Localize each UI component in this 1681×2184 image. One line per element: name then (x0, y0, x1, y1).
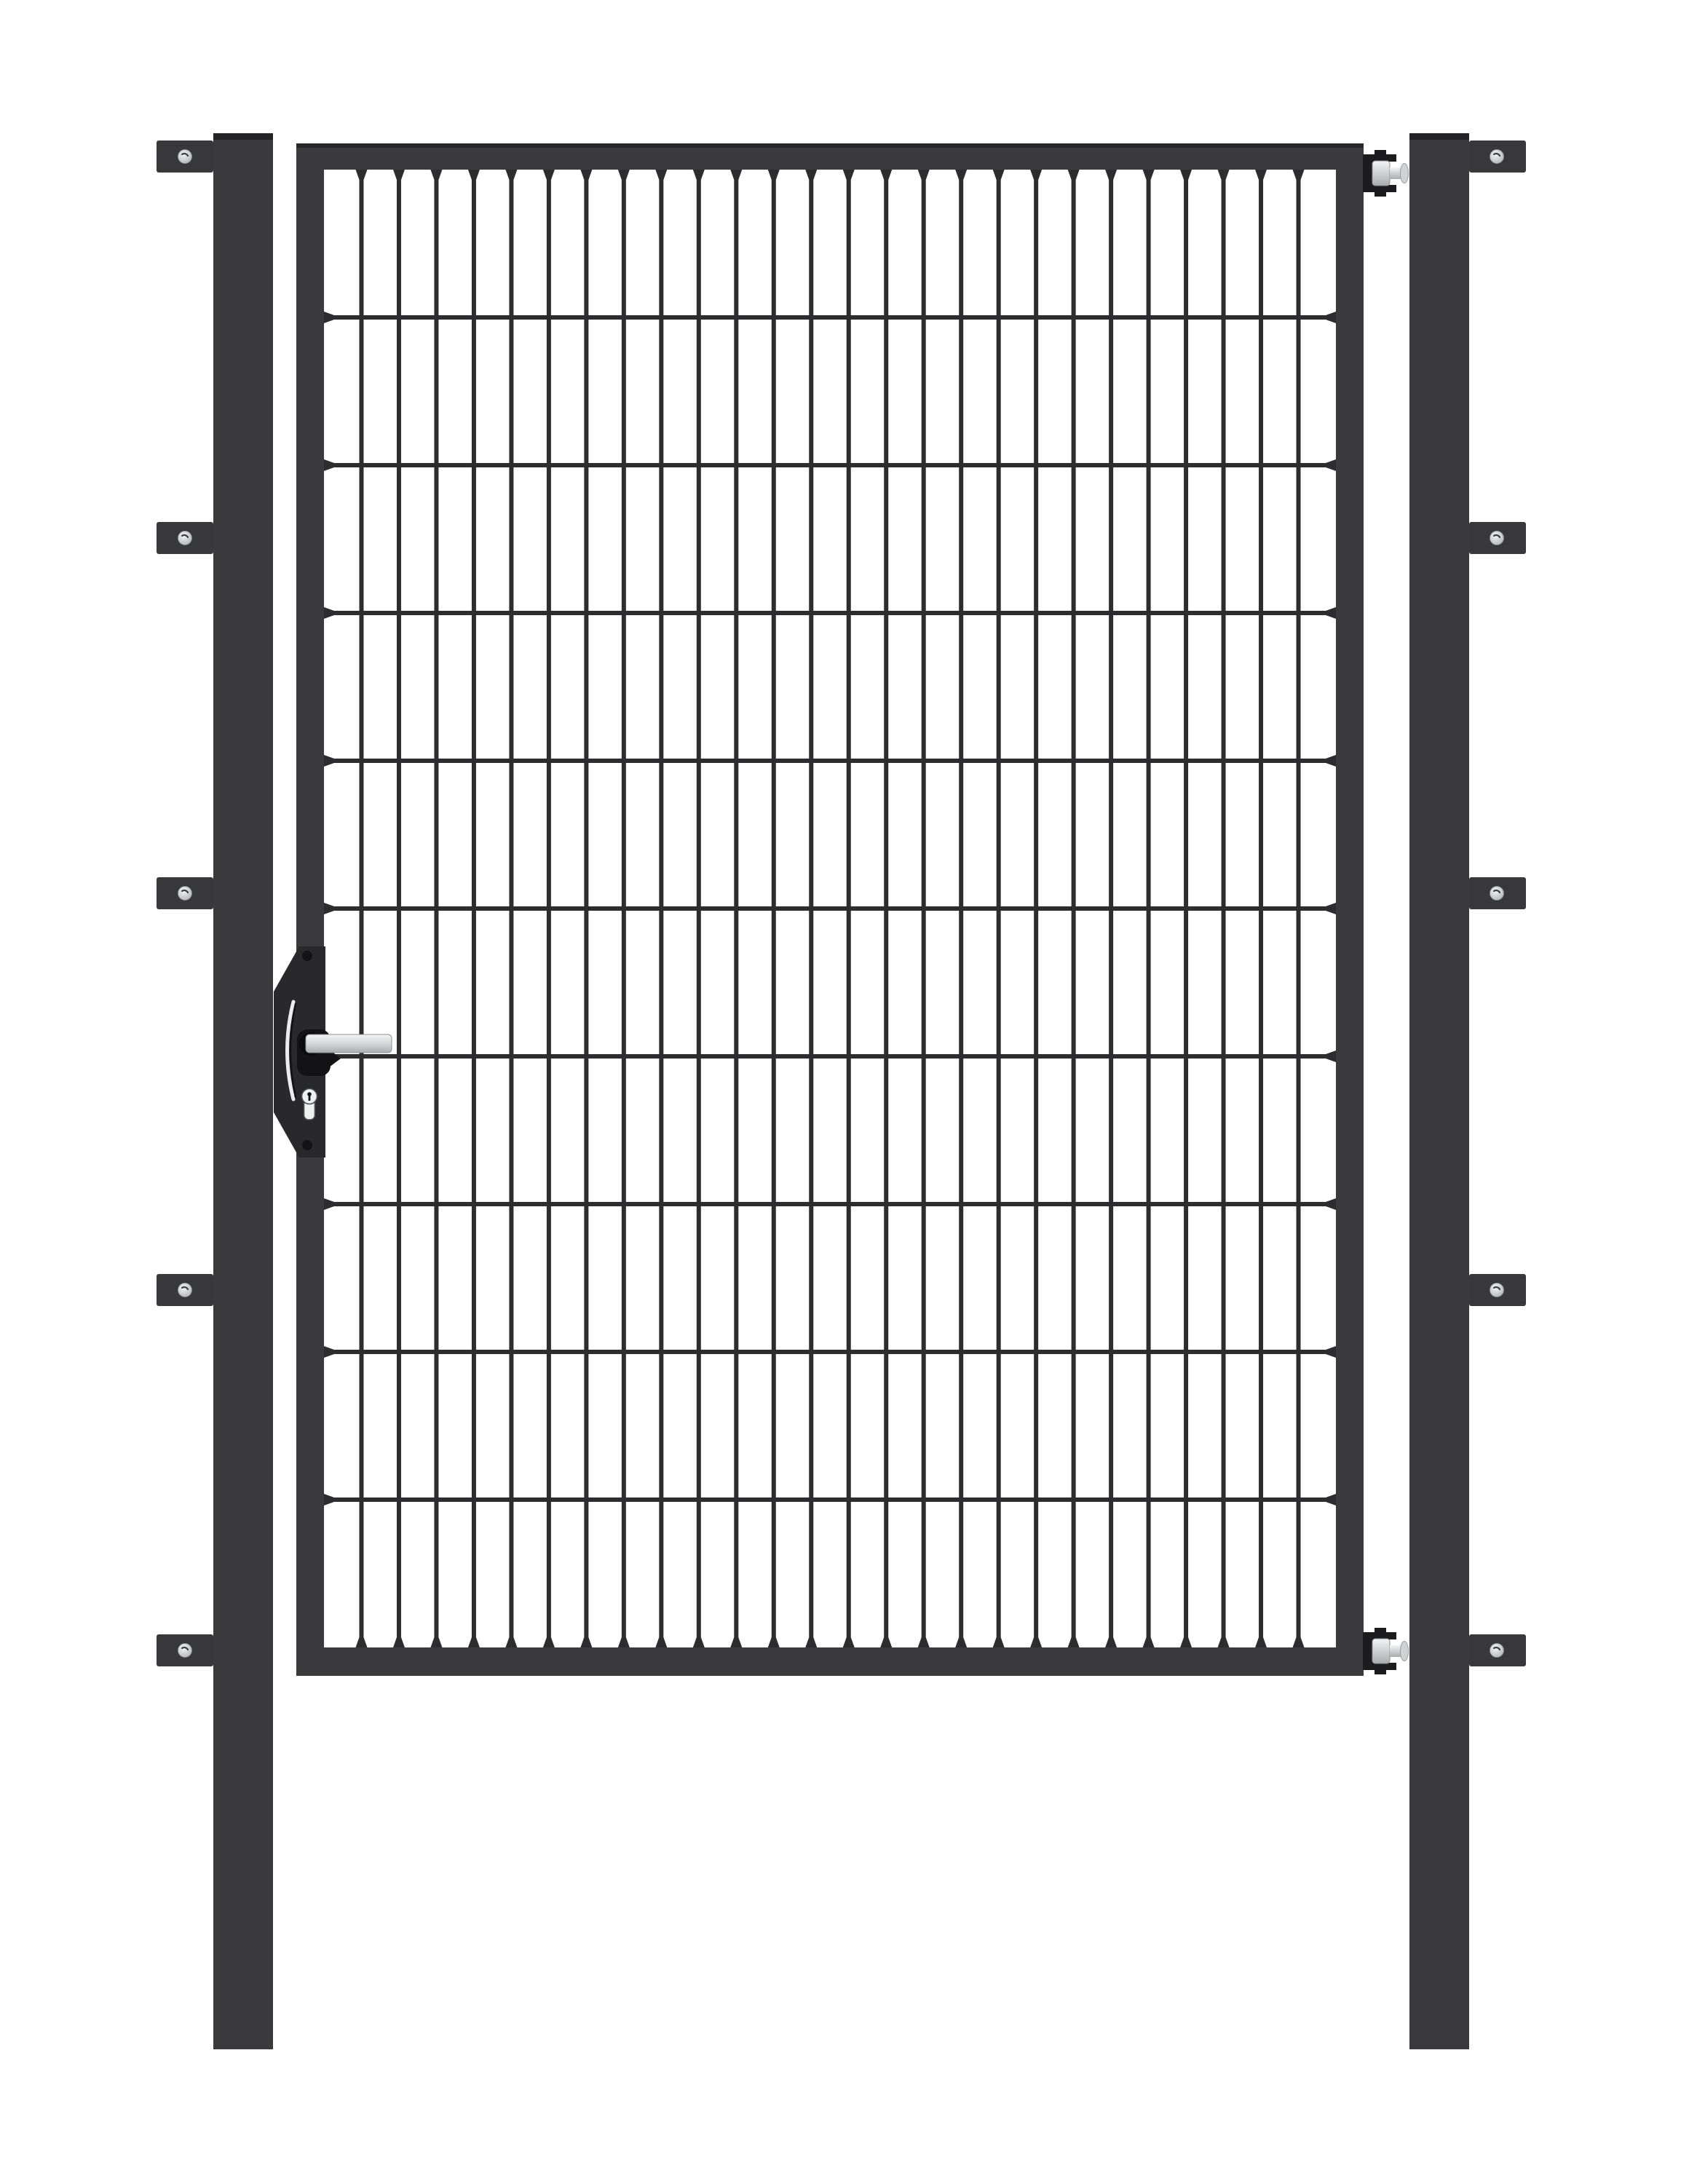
hinge-bolt-flange (1401, 1642, 1409, 1661)
wall-bracket (1469, 877, 1526, 909)
keyhole-slot (309, 1094, 311, 1101)
bracket-screw-icon (178, 1283, 192, 1297)
bracket-screw-icon (1490, 150, 1504, 164)
wall-bracket (1469, 522, 1526, 554)
hinge-pin-cylinder (1372, 161, 1390, 186)
wall-brackets-left (157, 141, 213, 1666)
bracket-screw-icon (1490, 887, 1504, 901)
lock-plate-screw-top (302, 951, 312, 961)
wall-bracket (1469, 141, 1526, 173)
bracket-screw-icon (178, 887, 192, 901)
wall-bracket (1469, 1274, 1526, 1306)
bracket-screw-icon (1490, 531, 1504, 545)
wall-bracket (157, 141, 213, 173)
bracket-screw-icon (1490, 1283, 1504, 1297)
hinge-nub-top (1375, 1628, 1386, 1633)
wall-bracket (157, 522, 213, 554)
left-post (213, 133, 273, 2049)
lock-assembly (274, 946, 392, 1158)
hinge-nub-top (1375, 150, 1386, 155)
door-handle-lever[interactable] (306, 1034, 392, 1053)
hinge (1363, 150, 1409, 197)
bracket-screw-icon (1490, 1644, 1504, 1658)
wall-brackets-right (1469, 141, 1526, 1666)
wall-bracket (157, 877, 213, 909)
wall-bracket (157, 1634, 213, 1666)
wall-bracket (157, 1274, 213, 1306)
right-post (1409, 133, 1469, 2049)
hinge-nub-bottom (1375, 191, 1386, 197)
wall-bracket (1469, 1634, 1526, 1666)
lock-plate-screw-bottom (302, 1140, 312, 1150)
product-image-canvas (0, 0, 1681, 2184)
double-rod-mesh (324, 170, 1336, 1647)
gate-render (0, 0, 1681, 2184)
gate-frame-top-edge (296, 143, 1364, 148)
bracket-screw-icon (178, 531, 192, 545)
bracket-screw-icon (178, 1644, 192, 1658)
hinge-nub-bottom (1375, 1669, 1386, 1674)
left-post-cap (213, 133, 273, 140)
hinge (1363, 1628, 1409, 1674)
bracket-screw-icon (178, 150, 192, 164)
right-post-cap (1409, 133, 1469, 140)
hinge-pin-cylinder (1372, 1639, 1390, 1663)
hinge-bolt-flange (1401, 164, 1409, 183)
hinge-assemblies (1363, 150, 1409, 1674)
